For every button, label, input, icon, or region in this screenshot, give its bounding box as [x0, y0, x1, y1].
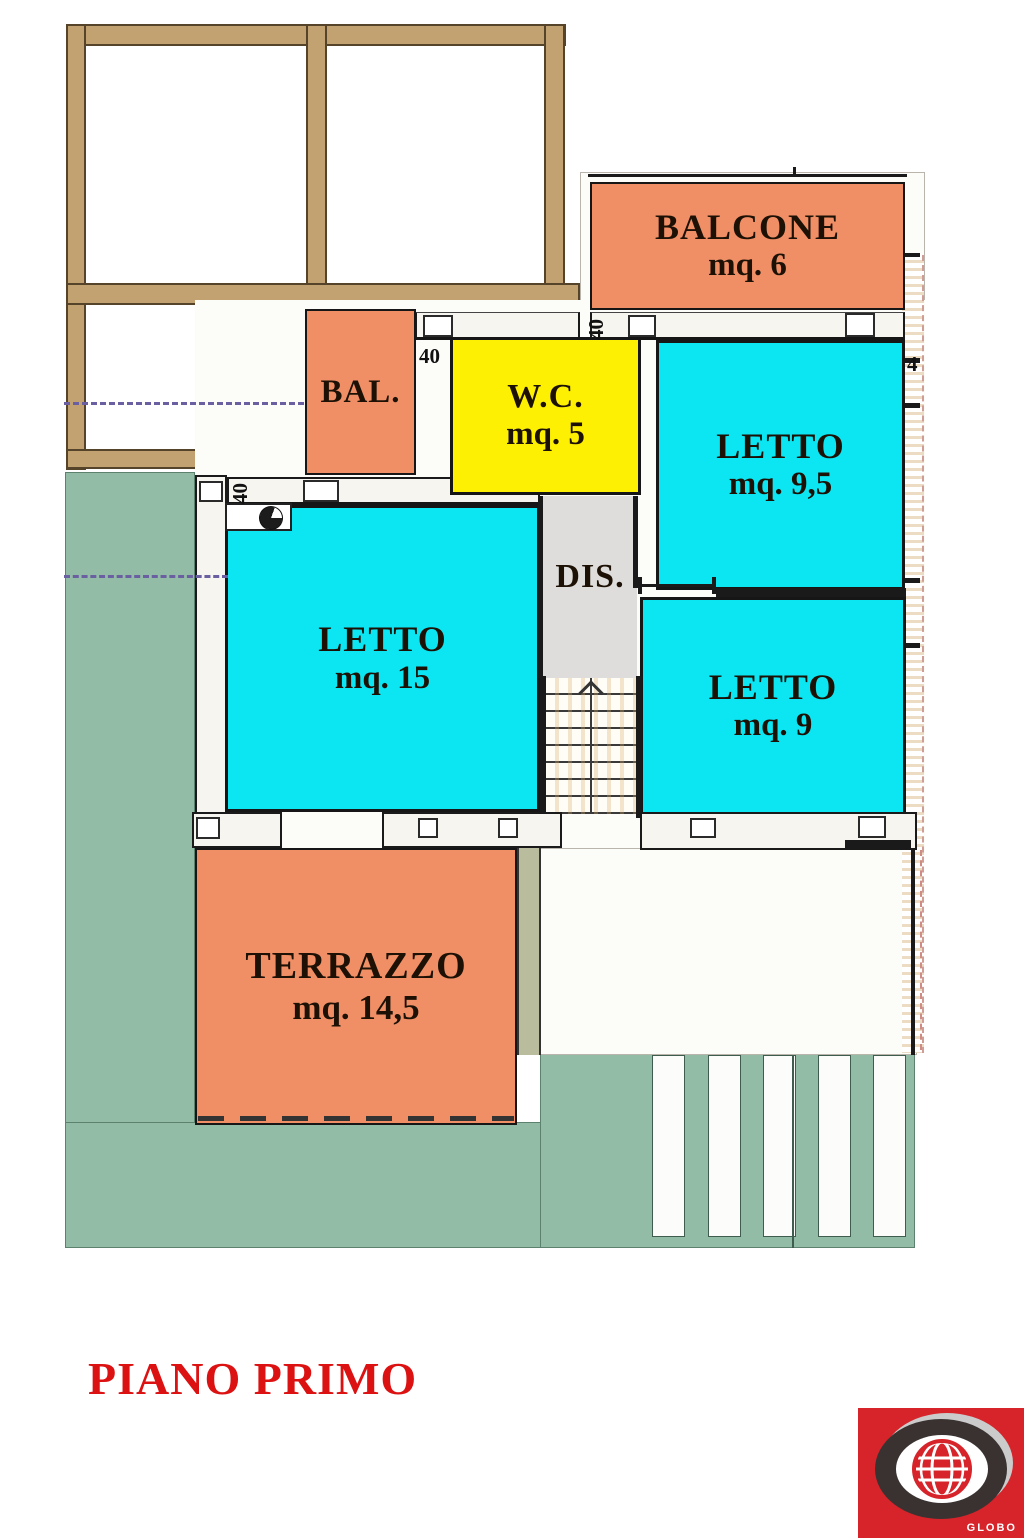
- floor-plan-canvas: BALCONE mq. 6 BAL. W.C. mq. 5 LETTO mq. …: [0, 0, 1024, 1538]
- wall-band-left-of-letto15: [195, 475, 227, 815]
- room-letto-9: LETTO mq. 9: [640, 597, 906, 815]
- room-balcone: BALCONE mq. 6: [590, 182, 905, 310]
- room-name: BAL.: [320, 374, 400, 411]
- room-letto-15: LETTO mq. 15: [225, 505, 540, 812]
- logo-brand-text: GLOBO: [967, 1522, 1017, 1534]
- pergola-stripe: [708, 1055, 741, 1237]
- dimension-label: 40: [228, 483, 253, 504]
- room-terrazzo: TERRAZZO mq. 14,5: [195, 848, 517, 1125]
- pergola-beam-right: [544, 24, 565, 316]
- wall-stub: [845, 840, 911, 850]
- room-name: DIS.: [555, 558, 624, 596]
- room-wc: W.C. mq. 5: [450, 337, 641, 495]
- boundary-line: [792, 1053, 794, 1248]
- room-name: LETTO: [709, 667, 837, 707]
- bottom-wall-segment: [382, 812, 562, 848]
- terrace-right-wall: [911, 848, 915, 1055]
- pergola-stripe: [873, 1055, 906, 1237]
- dimension-label: 4: [907, 352, 918, 377]
- window-symbol: [498, 818, 518, 838]
- pergola-beam-middle: [306, 24, 327, 305]
- window-symbol: [303, 480, 339, 502]
- reference-dash-line: [64, 402, 304, 405]
- balcony-top-line: [588, 174, 907, 177]
- hall-wall-left: [538, 496, 543, 678]
- window-symbol: [423, 315, 453, 337]
- hall-wall-right: [633, 496, 638, 588]
- room-area: mq. 9: [734, 707, 813, 745]
- room-bal: BAL.: [305, 309, 416, 475]
- plan-area-lower-terrace: [540, 848, 917, 1055]
- window-symbol: [418, 818, 438, 838]
- fixture-box: [225, 503, 292, 531]
- room-area: mq. 6: [708, 247, 787, 285]
- dimension-label: 40: [584, 319, 609, 340]
- window-symbol: [858, 816, 886, 838]
- room-dis: DIS.: [543, 496, 637, 678]
- door-jamb: [712, 577, 716, 594]
- door-line: [640, 584, 716, 587]
- room-name: LETTO: [716, 426, 844, 466]
- room-letto-9-5: LETTO mq. 9,5: [656, 340, 905, 590]
- wall-between-bedrooms: [716, 588, 906, 597]
- room-area: mq. 15: [335, 660, 430, 698]
- dimension-label: 40: [419, 344, 440, 369]
- room-area: mq. 5: [506, 416, 585, 454]
- wall-tick: [793, 167, 796, 176]
- terrace-bottom-tiles: [198, 1116, 514, 1121]
- stair-wall-left: [540, 676, 546, 816]
- pergola-stripe: [652, 1055, 685, 1237]
- room-name: TERRAZZO: [245, 945, 466, 988]
- fixture-circle-icon: [256, 503, 287, 534]
- room-name: W.C.: [507, 378, 583, 416]
- window-symbol: [845, 313, 875, 337]
- room-area: mq. 14,5: [292, 988, 419, 1028]
- room-area: mq. 9,5: [729, 466, 833, 504]
- globo-logo: GLOBO: [858, 1408, 1024, 1538]
- room-name: LETTO: [318, 619, 446, 659]
- window-symbol: [628, 315, 656, 337]
- window-symbol: [196, 817, 220, 839]
- door-jamb: [638, 577, 642, 594]
- terrace-side-strip: [517, 848, 541, 1055]
- page-title: PIANO PRIMO: [88, 1352, 417, 1405]
- section-dash-line: [920, 850, 922, 1050]
- stair-wall-right: [636, 676, 642, 818]
- window-symbol: [690, 818, 716, 838]
- reference-dash-line: [64, 575, 228, 578]
- pergola-stripe: [818, 1055, 851, 1237]
- window-symbol: [199, 481, 223, 502]
- room-name: BALCONE: [655, 207, 840, 247]
